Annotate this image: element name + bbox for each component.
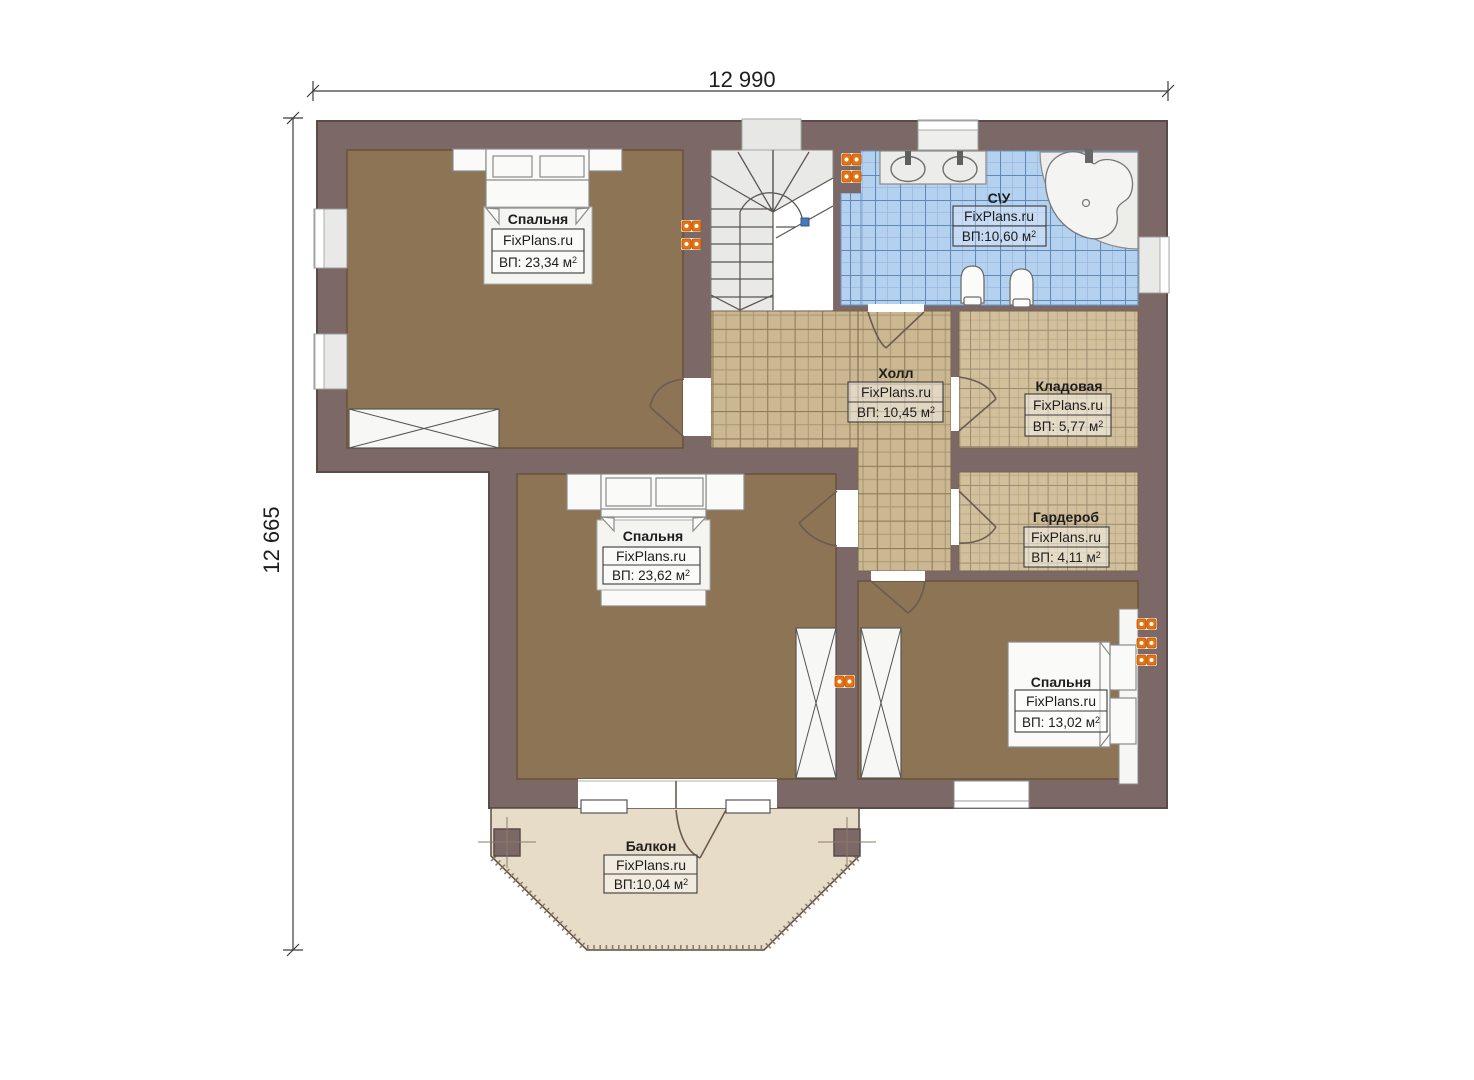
svg-text:ВП:10,04 м2: ВП:10,04 м2 bbox=[614, 877, 688, 892]
svg-text:Спальня: Спальня bbox=[508, 211, 568, 227]
svg-text:12 665: 12 665 bbox=[259, 506, 284, 573]
svg-text:FixPlans.ru: FixPlans.ru bbox=[1033, 397, 1103, 413]
svg-text:Холл: Холл bbox=[878, 365, 913, 381]
svg-text:ВП: 5,77 м2: ВП: 5,77 м2 bbox=[1033, 419, 1104, 434]
svg-text:ВП: 23,62 м2: ВП: 23,62 м2 bbox=[612, 568, 690, 583]
svg-text:Кладовая: Кладовая bbox=[1035, 378, 1102, 394]
svg-text:ВП: 23,34 м2: ВП: 23,34 м2 bbox=[499, 255, 577, 270]
svg-text:ВП: 4,11 м2: ВП: 4,11 м2 bbox=[1031, 550, 1101, 565]
svg-text:FixPlans.ru: FixPlans.ru bbox=[616, 857, 686, 873]
svg-text:FixPlans.ru: FixPlans.ru bbox=[616, 548, 686, 564]
svg-text:ВП: 10,45 м2: ВП: 10,45 м2 bbox=[857, 405, 935, 420]
svg-text:FixPlans.ru: FixPlans.ru bbox=[964, 208, 1034, 224]
svg-text:С\У: С\У bbox=[988, 190, 1011, 206]
svg-text:Балкон: Балкон bbox=[626, 838, 677, 854]
svg-text:ВП: 13,02 м2: ВП: 13,02 м2 bbox=[1022, 715, 1100, 730]
svg-text:FixPlans.ru: FixPlans.ru bbox=[1031, 529, 1101, 545]
svg-text:FixPlans.ru: FixPlans.ru bbox=[1026, 693, 1096, 709]
svg-text:ВП:10,60 м2: ВП:10,60 м2 bbox=[962, 229, 1036, 244]
svg-text:FixPlans.ru: FixPlans.ru bbox=[861, 384, 931, 400]
svg-text:Спальня: Спальня bbox=[623, 528, 683, 544]
svg-text:Спальня: Спальня bbox=[1031, 674, 1091, 690]
svg-text:Гардероб: Гардероб bbox=[1033, 509, 1100, 525]
svg-text:FixPlans.ru: FixPlans.ru bbox=[503, 232, 573, 248]
svg-text:12 990: 12 990 bbox=[708, 67, 775, 92]
